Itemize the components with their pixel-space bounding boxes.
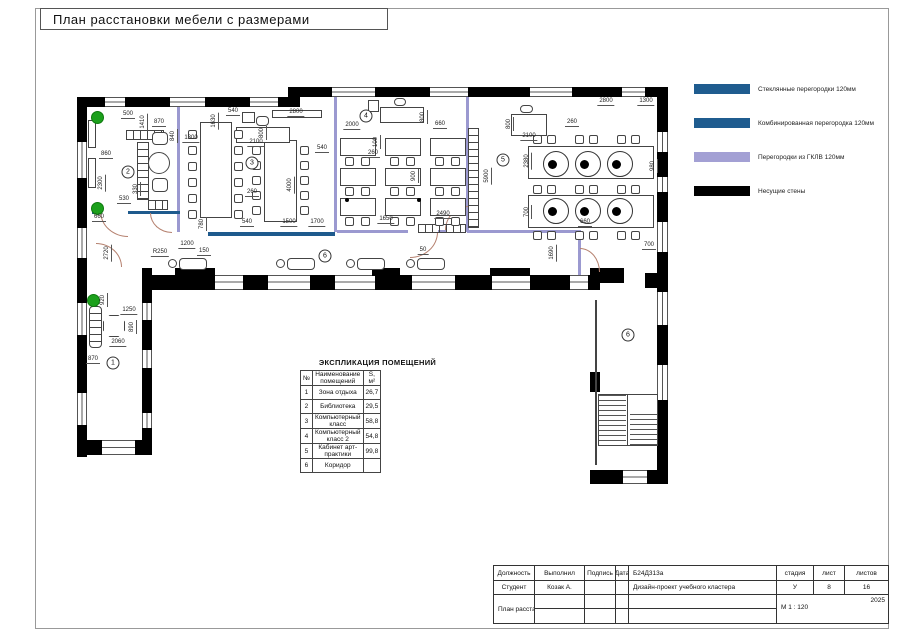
table-cell: 99,8 (363, 444, 381, 459)
stair-divider (627, 395, 628, 445)
pottery-wheel (607, 151, 633, 177)
bearing-wall-segment (77, 97, 87, 142)
chair (252, 206, 261, 215)
dimension-label: 2000 (343, 122, 360, 130)
chair (252, 176, 261, 185)
dimension-label: 900 (411, 169, 419, 183)
chair (547, 185, 556, 194)
pottery-wheel (543, 198, 569, 224)
chair (617, 135, 626, 144)
table-cell: 6 (301, 459, 313, 473)
chair (631, 135, 640, 144)
chair (188, 146, 197, 155)
dimension-label: 4000 (287, 176, 295, 193)
chair (300, 176, 309, 185)
room-number-5: 5 (497, 154, 510, 167)
tb-empty (584, 608, 615, 623)
dimension-label: 1700 (308, 219, 325, 227)
tb-year: 2025 (871, 597, 885, 604)
chair (547, 231, 556, 240)
table-cell: 58,8 (363, 414, 381, 429)
bench-end-circle (276, 259, 285, 268)
chair (188, 178, 197, 187)
dimension-label: 260 (366, 150, 380, 158)
door-swing-arc (580, 248, 600, 272)
bearing-wall-segment (77, 335, 87, 393)
table-row: 1Зона отдыха26,7 (301, 386, 381, 400)
chair (575, 231, 584, 240)
chair (589, 185, 598, 194)
chair (435, 157, 444, 166)
drawing-sheet: План расстановки мебели с размерами 1234… (0, 0, 900, 635)
bearing-wall-segment (647, 470, 668, 484)
bench-end-circle (168, 259, 177, 268)
legend-swatch (694, 152, 750, 162)
dimension-label: 780 (199, 217, 207, 231)
dimension-label: 1200 (178, 241, 195, 249)
soft-chair (256, 116, 269, 126)
chair (451, 217, 460, 226)
dimension-label: 2720 (104, 244, 112, 261)
stair-flight (630, 414, 657, 445)
tb-sheets-label: листов (844, 565, 888, 580)
dimension-label: 1650 (377, 216, 394, 224)
tb-stage: У (776, 580, 813, 594)
chair (361, 157, 370, 166)
chair (234, 130, 243, 139)
bearing-wall-segment (657, 400, 668, 480)
chair (547, 135, 556, 144)
dimension-label: 1250 (120, 307, 137, 315)
computer-table (200, 122, 232, 218)
room-number-6: 6 (622, 329, 635, 342)
gklv-partition (334, 97, 337, 232)
dimension-label: 540 (240, 219, 254, 227)
computer-desk (430, 168, 466, 186)
bearing-wall-segment (645, 273, 668, 288)
stair-flight (599, 395, 626, 445)
teacher-desk (380, 107, 424, 123)
dimension-label: 50 (418, 247, 429, 255)
computer-desk (385, 198, 421, 216)
tb-empty (534, 594, 584, 608)
bearing-wall-segment (530, 275, 570, 290)
chair (435, 187, 444, 196)
bearing-wall-segment (142, 368, 152, 413)
table-row: 2Библиотека29,5 (301, 400, 381, 414)
table-row: 4Компьютерный класс 254,8 (301, 429, 381, 444)
tb-name: Козак А. (534, 580, 584, 594)
legend-swatch (694, 118, 750, 128)
bearing-wall-segment (375, 275, 412, 290)
legend-label: Комбинированная перегородка 120мм (758, 120, 874, 127)
tb-stage-label: стадия (776, 565, 813, 580)
dimension-label: 2300 (98, 174, 106, 191)
tb-empty (628, 608, 776, 623)
tb-col-date: Дата (615, 565, 628, 580)
pottery-wheel (575, 151, 601, 177)
dimension-label: 800 (506, 117, 514, 131)
explication-header: Наименование помещений (312, 371, 363, 386)
chair (234, 162, 243, 171)
dimension-label: 1300 (637, 98, 654, 106)
legend-item-gklv-partition: Перегородки из ГКЛВ 120мм (694, 152, 844, 162)
chair (300, 161, 309, 170)
dimension-label: 1690 (549, 244, 557, 261)
explication-title: ЭКСПЛИКАЦИЯ ПОМЕЩЕНИЙ (300, 358, 455, 367)
dimension-label: 540 (226, 108, 240, 116)
explication-header: № (301, 371, 313, 386)
dimension-label: 890 (129, 320, 137, 334)
tb-sign-value (584, 580, 615, 594)
legend-swatch (694, 186, 750, 196)
door-swing-arc (150, 213, 172, 233)
tb-sheet-num: 8 (813, 580, 844, 594)
dimension-label: 800 (259, 126, 267, 140)
title-block: Должность Выполнил Подпись Дата Б24Д313а… (493, 565, 889, 624)
dimension-label: 2800 (597, 98, 614, 106)
bearing-wall-segment (142, 320, 152, 350)
window-bench (88, 120, 96, 148)
table-cell: 2 (301, 400, 313, 414)
bearing-wall-segment (657, 152, 668, 177)
bearing-wall-segment (205, 97, 250, 107)
dimension-label: 150 (197, 248, 211, 256)
chair (300, 146, 309, 155)
tb-role: Студент (493, 580, 534, 594)
floor-plan: 1234566500141087084086023003305306601300… (0, 0, 900, 635)
table-row: 5Кабинет арт-практики99,8 (301, 444, 381, 459)
dimension-label: 870 (86, 356, 100, 364)
dimension-label: 2800 (287, 109, 304, 117)
bearing-wall-segment (125, 97, 170, 107)
chair (361, 217, 370, 226)
chair (345, 217, 354, 226)
legend-swatch (694, 84, 750, 94)
dimension-label: 700 (524, 205, 532, 219)
chair (575, 135, 584, 144)
octagon-table (103, 315, 125, 337)
dimension-label: 1630 (211, 112, 219, 129)
chair (533, 231, 542, 240)
tb-empty (534, 608, 584, 623)
table-cell: 5 (301, 444, 313, 459)
chair (234, 146, 243, 155)
chair (451, 157, 460, 166)
plant (87, 294, 100, 307)
soft-chair (520, 105, 533, 113)
dimension-label: 870 (152, 119, 166, 127)
dimension-label: 1300 (182, 135, 199, 143)
explication-header: S, м² (363, 371, 381, 386)
column-dot (417, 198, 421, 202)
dimension-label: 2100 (247, 139, 264, 147)
bearing-wall-segment (243, 275, 268, 290)
glass-partition (208, 232, 335, 236)
dimension-label: 980 (650, 159, 658, 173)
soft-chair (152, 178, 168, 192)
chair (300, 206, 309, 215)
bench-end-circle (406, 259, 415, 268)
chair (406, 187, 415, 196)
dimension-label: 1500 (280, 219, 297, 227)
table-row: 6Коридор (301, 459, 381, 473)
chair (188, 162, 197, 171)
bench-end-circle (346, 259, 355, 268)
dimension-label: 500 (121, 111, 135, 119)
room-number-4: 4 (360, 110, 373, 123)
legend-item-combined-partition: Комбинированная перегородка 120мм (694, 118, 874, 128)
chair (188, 210, 197, 219)
dimension-label: 100 (373, 135, 381, 149)
dimension-label: 2380 (524, 152, 532, 169)
chair (390, 157, 399, 166)
table-cell: Зона отдыха (312, 386, 363, 400)
table-cell: 4 (301, 429, 313, 444)
bearing-wall-segment (490, 268, 530, 276)
bearing-wall-segment (455, 275, 492, 290)
dimension-label: R250 (151, 249, 169, 257)
dimension-label: 2490 (434, 211, 451, 219)
tb-col-sign: Подпись (584, 565, 615, 580)
tb-col-role: Должность (493, 565, 534, 580)
table-cell: 54,8 (363, 429, 381, 444)
legend-item-bearing-walls: Несущие стены (694, 186, 805, 196)
corridor-bench (417, 258, 445, 270)
dimension-label: 540 (315, 145, 329, 153)
tb-sheets-total: 16 (844, 580, 888, 594)
pottery-wheel (543, 151, 569, 177)
soft-chair (394, 98, 406, 106)
table-cell: Коридор (312, 459, 363, 473)
corridor-bench (179, 258, 207, 270)
chair (345, 157, 354, 166)
chair (575, 185, 584, 194)
tb-year-scale-cell: 2025 М 1 : 120 (776, 594, 888, 623)
chair (451, 187, 460, 196)
table-cell: Компьютерный класс 2 (312, 429, 363, 444)
dimension-label: 840 (170, 129, 178, 143)
bearing-wall-segment (590, 470, 623, 484)
dimension-label: 530 (117, 196, 131, 204)
bearing-wall-segment (468, 87, 530, 97)
thin-wall (595, 300, 597, 465)
gklv-partition (467, 230, 578, 233)
soft-chair (152, 132, 168, 145)
dimension-label: 860 (99, 151, 113, 159)
round-table (148, 152, 170, 174)
window-bench (88, 158, 96, 188)
computer-desk (430, 138, 466, 156)
bearing-wall-segment (572, 87, 622, 97)
table-cell: Библиотека (312, 400, 363, 414)
bearing-wall-segment (77, 440, 102, 455)
explication-table: №Наименование помещенийS, м² 1Зона отдых… (300, 370, 381, 473)
bearing-wall-segment (145, 275, 215, 290)
tb-empty (615, 608, 628, 623)
dimension-label: 330 (133, 182, 141, 196)
room-number-2: 2 (122, 166, 135, 179)
dimension-label: 660 (578, 219, 592, 227)
room-number-6: 6 (319, 250, 332, 263)
side-table (242, 112, 255, 123)
tb-date-value (615, 580, 628, 594)
tb-scale: М 1 : 120 (781, 604, 808, 611)
bearing-wall-segment (77, 258, 87, 303)
pottery-wheel (607, 198, 633, 224)
computer-desk (340, 168, 376, 186)
tb-col-done: Выполнил (534, 565, 584, 580)
dimension-label: 800 (420, 110, 428, 124)
chair (234, 194, 243, 203)
chair (361, 187, 370, 196)
table-cell: Компьютерный класс (312, 414, 363, 429)
computer-desk (385, 138, 421, 156)
gklv-partition (337, 230, 408, 233)
chair (300, 191, 309, 200)
chair (406, 157, 415, 166)
tb-empty (615, 594, 628, 608)
chair (589, 135, 598, 144)
dimension-label: 5900 (484, 167, 492, 184)
chair (617, 185, 626, 194)
dimension-label: 2060 (109, 339, 126, 347)
bearing-wall-segment (657, 87, 668, 132)
room-number-3: 3 (246, 157, 259, 170)
chair (234, 178, 243, 187)
chair (631, 185, 640, 194)
bearing-wall-segment (375, 87, 430, 97)
table-cell: Кабинет арт-практики (312, 444, 363, 459)
bearing-wall-segment (142, 268, 152, 303)
table-cell: 1 (301, 386, 313, 400)
locker-column (468, 128, 479, 228)
table-cell: 29,5 (363, 400, 381, 414)
bearing-wall-segment (77, 178, 87, 228)
dimension-label: 2100 (520, 133, 537, 141)
chair (631, 231, 640, 240)
window-band (77, 97, 292, 107)
chair (234, 210, 243, 219)
corridor-bench (287, 258, 315, 270)
dimension-label: 660 (433, 121, 447, 129)
corridor-bench (357, 258, 385, 270)
table-row: 3Компьютерный класс58,8 (301, 414, 381, 429)
chair (188, 194, 197, 203)
dimension-label: 260 (245, 189, 259, 197)
table-cell (363, 459, 381, 473)
chair (252, 146, 261, 155)
tb-sheet-label: лист (813, 565, 844, 580)
legend-item-glass-partition: Стеклянные перегородки 120мм (694, 84, 856, 94)
sofa (89, 306, 102, 348)
bearing-wall-segment (657, 325, 668, 365)
tb-empty (628, 594, 776, 608)
room-number-1: 1 (107, 357, 120, 370)
chair (345, 187, 354, 196)
dimension-label: 260 (565, 119, 579, 127)
column-dot (345, 198, 349, 202)
bearing-wall-segment (290, 87, 332, 97)
chair (406, 217, 415, 226)
table-cell: 3 (301, 414, 313, 429)
chair (589, 231, 598, 240)
dimension-label: 920 (100, 293, 108, 307)
dimension-label: 1410 (140, 113, 148, 130)
tb-code: Б24Д313а (628, 565, 776, 580)
tb-sheet-title: План расстановки мебели с размерами (493, 594, 534, 623)
bearing-wall-segment (657, 192, 668, 222)
legend-label: Несущие стены (758, 188, 805, 195)
tb-empty (584, 594, 615, 608)
legend-label: Перегородки из ГКЛВ 120мм (758, 154, 844, 161)
bearing-wall-segment (135, 440, 152, 455)
chair (617, 231, 626, 240)
bookshelf (148, 200, 168, 210)
dimension-label: 660 (92, 214, 106, 222)
plant (91, 111, 104, 124)
bearing-wall-segment (310, 275, 335, 290)
chair (390, 187, 399, 196)
chair (533, 185, 542, 194)
table-cell: 26,7 (363, 386, 381, 400)
tb-project: Дизайн-проект учебного кластера (628, 580, 776, 594)
dimension-label: 700 (642, 242, 656, 250)
legend-label: Стеклянные перегородки 120мм (758, 86, 856, 93)
